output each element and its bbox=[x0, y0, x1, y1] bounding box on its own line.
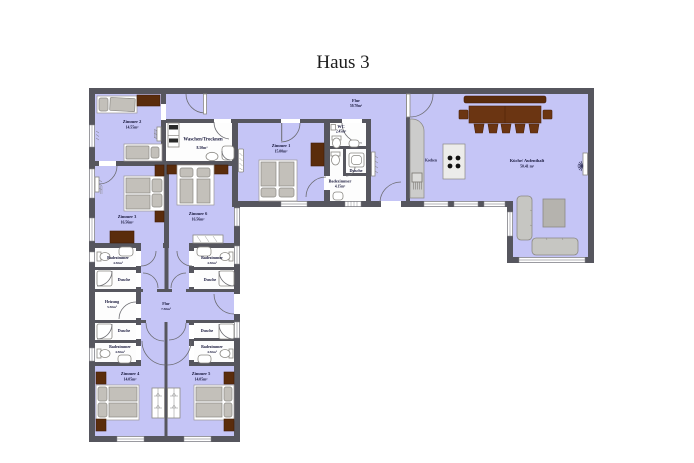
svg-text:Zimmer 4: Zimmer 4 bbox=[121, 371, 140, 376]
svg-text:Badezimmer: Badezimmer bbox=[109, 344, 131, 349]
svg-text:Badezimmer: Badezimmer bbox=[107, 255, 129, 260]
svg-text:4.50m²: 4.50m² bbox=[207, 261, 217, 265]
svg-text:Heizung: Heizung bbox=[105, 299, 119, 304]
svg-text:Zimmer 2: Zimmer 2 bbox=[123, 119, 142, 124]
svg-text:Flur: Flur bbox=[352, 98, 360, 103]
svg-text:Dusche: Dusche bbox=[118, 328, 131, 333]
svg-text:Dusche: Dusche bbox=[118, 277, 131, 282]
svg-text:16.56m²: 16.56m² bbox=[192, 218, 206, 222]
svg-text:Dusche: Dusche bbox=[204, 277, 217, 282]
svg-text:15.00m²: 15.00m² bbox=[275, 150, 289, 154]
svg-text:WC: WC bbox=[337, 124, 344, 129]
svg-text:Badezimmer: Badezimmer bbox=[329, 179, 352, 184]
svg-text:Waschen/Trocknen: Waschen/Trocknen bbox=[183, 138, 223, 143]
svg-text:59.70m²: 59.70m² bbox=[350, 104, 362, 108]
svg-text:16.56m²: 16.56m² bbox=[121, 221, 135, 225]
svg-text:Badezimmer: Badezimmer bbox=[201, 255, 223, 260]
svg-text:Zimmer 5: Zimmer 5 bbox=[192, 371, 211, 376]
svg-text:4.50m²: 4.50m² bbox=[113, 261, 123, 265]
svg-text:Dusche: Dusche bbox=[201, 328, 214, 333]
svg-text:7.50m²: 7.50m² bbox=[161, 307, 171, 311]
svg-text:Dusche: Dusche bbox=[349, 168, 362, 173]
svg-text:14.55m²: 14.55m² bbox=[126, 126, 140, 130]
svg-text:4.50m²: 4.50m² bbox=[115, 350, 125, 354]
svg-text:2.45m²: 2.45m² bbox=[336, 130, 346, 134]
svg-text:4.15m²: 4.15m² bbox=[335, 185, 345, 189]
svg-text:14.05m²: 14.05m² bbox=[195, 378, 209, 382]
svg-text:Zimmer 6: Zimmer 6 bbox=[189, 211, 208, 216]
svg-text:Badezimmer: Badezimmer bbox=[201, 344, 223, 349]
svg-text:Zimmer 3: Zimmer 3 bbox=[118, 214, 137, 219]
svg-text:4.50m²: 4.50m² bbox=[207, 350, 217, 354]
svg-text:8.50m²: 8.50m² bbox=[197, 146, 209, 150]
svg-text:Flur: Flur bbox=[162, 301, 170, 306]
svg-text:50.41 m²: 50.41 m² bbox=[520, 165, 535, 169]
svg-text:Zimmer 1: Zimmer 1 bbox=[272, 143, 291, 148]
svg-text:Kochen: Kochen bbox=[425, 159, 437, 163]
svg-text:14.05m²: 14.05m² bbox=[124, 378, 138, 382]
svg-text:Haus 3: Haus 3 bbox=[316, 52, 369, 73]
svg-text:Küche/ Aufenthalt: Küche/ Aufenthalt bbox=[510, 158, 545, 163]
svg-text:5.50m²: 5.50m² bbox=[107, 305, 117, 309]
